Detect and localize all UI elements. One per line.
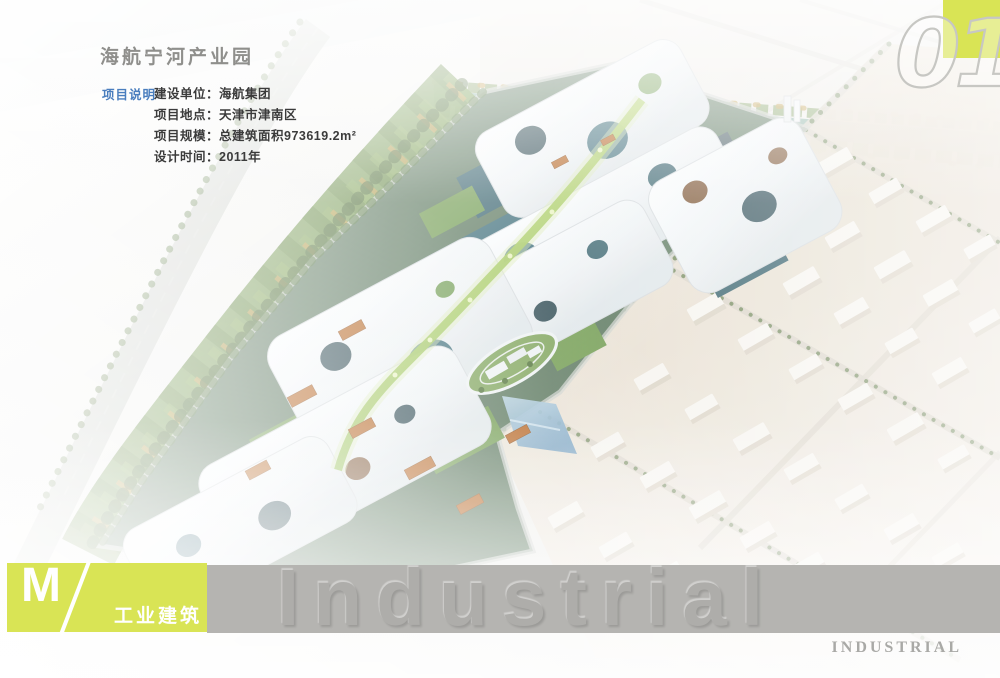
- portfolio-page: 海航宁河产业园 项目说明 建设单位：海航集团 项目地点：天津市津南区 项目规模：…: [0, 0, 1000, 678]
- page-number: 01: [850, 0, 1000, 114]
- logo-slash: [59, 561, 90, 635]
- industrial-caps-label: INDUSTRIAL: [832, 639, 962, 657]
- detail-location: 项目地点：天津市津南区: [154, 105, 356, 126]
- category-logo-box: M 工业建筑: [7, 563, 207, 632]
- project-details: 建设单位：海航集团 项目地点：天津市津南区 项目规模：总建筑面积973619.2…: [154, 84, 356, 168]
- industrial-watermark-band: Industrial: [207, 565, 1000, 633]
- page-number-text: 01: [895, 0, 1000, 109]
- detail-construction-unit: 建设单位：海航集团: [154, 84, 356, 105]
- watermark-text: Industrial: [207, 565, 1000, 631]
- category-label: 工业建筑: [114, 601, 202, 628]
- section-label: 项目说明: [102, 84, 156, 103]
- detail-scale: 项目规模：总建筑面积973619.2m²: [154, 126, 356, 147]
- logo-letter: M: [21, 562, 61, 610]
- detail-design-year: 设计时间：2011年: [154, 147, 356, 168]
- page-title: 海航宁河产业园: [100, 42, 254, 69]
